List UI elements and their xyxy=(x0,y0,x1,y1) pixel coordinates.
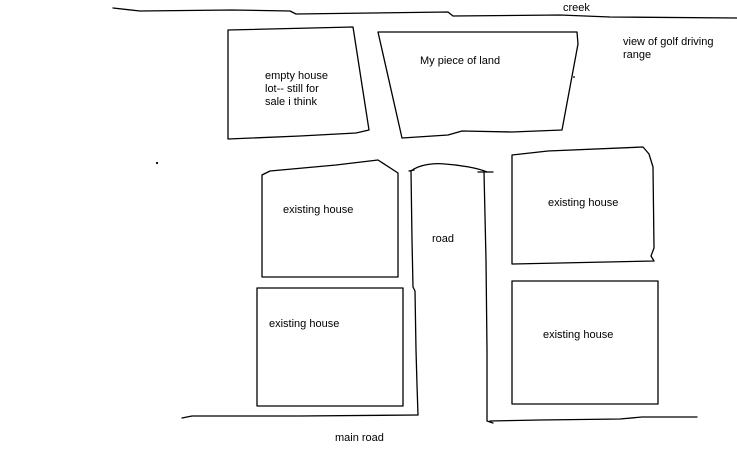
my-land-outline xyxy=(378,32,578,138)
existing-house-lower-right-label: existing house xyxy=(543,329,613,342)
existing-house-lower-right-outline xyxy=(512,281,658,404)
golf-view-label: view of golf driving range xyxy=(623,36,714,62)
road-label: road xyxy=(432,233,454,246)
empty-lot-label-line2: lot-- still for xyxy=(265,83,328,96)
empty-lot-label-line1: empty house xyxy=(265,70,328,83)
creek-line xyxy=(113,8,737,18)
main-road-line-right xyxy=(490,417,697,421)
property-sketch-linework xyxy=(0,0,737,456)
stray-dot-left xyxy=(156,162,158,164)
main-road-label: main road xyxy=(335,432,384,445)
main-road-line-left xyxy=(182,415,418,418)
empty-lot-label-line3: sale i think xyxy=(265,96,328,109)
road-right-edge xyxy=(478,172,493,423)
paint-drawing-canvas: creek view of golf driving range My piec… xyxy=(0,0,737,456)
existing-house-upper-left-outline xyxy=(262,160,398,277)
golf-view-label-line1: view of golf driving xyxy=(623,36,714,49)
existing-house-upper-right-label: existing house xyxy=(548,197,618,210)
road-top-curve xyxy=(411,164,487,172)
my-land-label: My piece of land xyxy=(420,55,500,68)
existing-house-lower-left-label: existing house xyxy=(269,318,339,331)
creek-label: creek xyxy=(563,2,590,15)
road-left-edge xyxy=(409,170,418,415)
existing-house-upper-left-label: existing house xyxy=(283,204,353,217)
golf-view-label-line2: range xyxy=(623,49,714,62)
empty-lot-label: empty house lot-- still for sale i think xyxy=(265,70,328,109)
stray-dot-right xyxy=(573,76,575,78)
existing-house-lower-left-outline xyxy=(257,288,403,406)
